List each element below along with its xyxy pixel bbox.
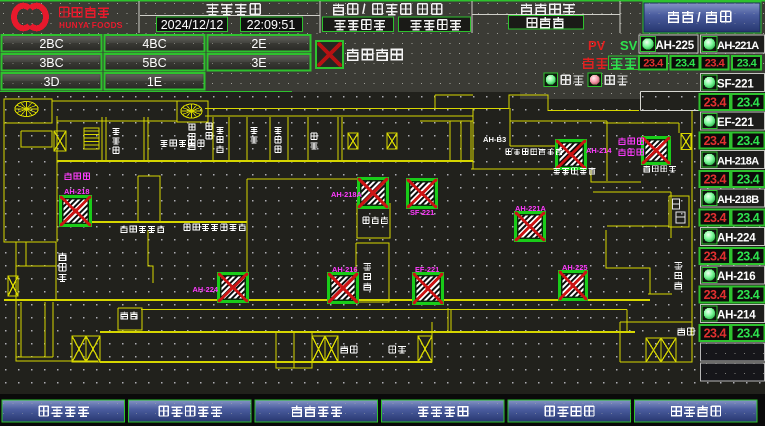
svg-text:23.4: 23.4	[737, 58, 758, 70]
svg-text:23.4: 23.4	[737, 96, 760, 110]
svg-text:23.4: 23.4	[737, 250, 760, 264]
svg-text:/: /	[697, 10, 701, 25]
svg-text:AH-221A: AH-221A	[515, 204, 546, 213]
svg-text:23.4: 23.4	[705, 58, 726, 70]
svg-text:AH-218: AH-218	[64, 187, 89, 196]
svg-text:23.4: 23.4	[704, 250, 727, 264]
svg-text:23.4: 23.4	[737, 173, 760, 187]
svg-text:AH-214: AH-214	[586, 146, 612, 155]
svg-text:AH-224: AH-224	[193, 285, 219, 294]
svg-text:23.4: 23.4	[704, 96, 727, 110]
svg-text:4BC: 4BC	[142, 37, 166, 51]
svg-text:23.4: 23.4	[737, 327, 760, 341]
svg-text:AH-225: AH-225	[562, 263, 587, 272]
svg-text:23.4: 23.4	[643, 58, 664, 70]
svg-text:23.4: 23.4	[737, 211, 760, 225]
svg-text:3E: 3E	[251, 56, 266, 70]
svg-text:HUNYA FOODS: HUNYA FOODS	[59, 21, 123, 30]
svg-text:22:09:51: 22:09:51	[247, 18, 296, 32]
svg-text:/: /	[362, 2, 366, 17]
svg-text:23.4: 23.4	[737, 134, 760, 148]
svg-text:AH-216: AH-216	[332, 265, 357, 274]
svg-text:AH-216: AH-216	[717, 271, 755, 283]
svg-text:AH-B3: AH-B3	[483, 135, 506, 144]
svg-text:23.4: 23.4	[704, 134, 727, 148]
svg-text:3BC: 3BC	[39, 56, 63, 70]
svg-text:23.4: 23.4	[704, 288, 727, 302]
svg-text:SF-221: SF-221	[717, 78, 754, 90]
svg-text:EF-221: EF-221	[415, 265, 439, 274]
svg-text:AH-221A: AH-221A	[717, 40, 759, 52]
svg-text:2024/12/12: 2024/12/12	[161, 18, 224, 32]
svg-text:23.4: 23.4	[704, 211, 727, 225]
svg-text:SF-221: SF-221	[410, 208, 434, 217]
svg-text:2BC: 2BC	[39, 37, 63, 51]
svg-text:3D: 3D	[44, 75, 60, 89]
svg-text:1E: 1E	[147, 75, 162, 89]
svg-text:AH-224: AH-224	[717, 232, 756, 244]
svg-text:2E: 2E	[251, 37, 266, 51]
svg-text:SV: SV	[620, 38, 638, 53]
svg-text:PV: PV	[588, 38, 606, 53]
svg-text:23.4: 23.4	[737, 288, 760, 302]
svg-text:AH-218B: AH-218B	[717, 194, 759, 206]
svg-text:5BC: 5BC	[142, 56, 166, 70]
svg-text:23.4: 23.4	[704, 173, 727, 187]
svg-text:23.4: 23.4	[675, 58, 696, 70]
svg-text:AH-214: AH-214	[717, 309, 756, 321]
svg-text:AH-218A: AH-218A	[717, 155, 759, 167]
svg-text:23.4: 23.4	[704, 327, 727, 341]
svg-text:EF-221: EF-221	[717, 117, 754, 129]
svg-text:AH-218A: AH-218A	[331, 190, 362, 199]
svg-text:AH-225: AH-225	[656, 40, 695, 52]
